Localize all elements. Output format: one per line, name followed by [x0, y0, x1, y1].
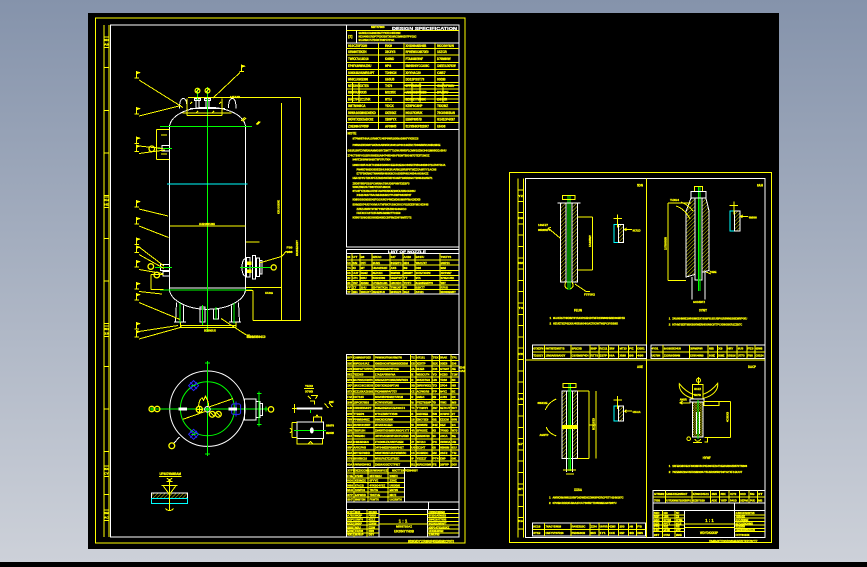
svg-text:0704BCRRRXUB0A2FCU7S05NY7D8W9B: 0704BCRRRXUB0A2FCU7S05NY7D8W9BHG8728YU [553, 501, 617, 505]
svg-text:D7F: D7F [361, 261, 367, 265]
svg-text:RKCG9Y82N: RKCG9Y82N [437, 44, 455, 48]
svg-text:3B: 3B [411, 384, 415, 388]
svg-text:U80XM0: U80XM0 [390, 483, 401, 487]
svg-text:BE: BE [452, 389, 456, 393]
svg-text:MS235X: MS235X [385, 91, 396, 95]
svg-text:XPD4: XPD4 [440, 384, 447, 388]
svg-text:KB: KB [433, 429, 437, 433]
svg-text:M3M6Y: M3M6Y [404, 271, 413, 275]
svg-text:GB: GB [433, 445, 436, 449]
svg-text:XRW: XRW [609, 347, 614, 351]
svg-text:BZ019Z9: BZ019Z9 [591, 418, 595, 430]
svg-text:D4Y34NEBPXN60F641T: D4Y34NEBPXN60F641T [375, 445, 404, 449]
svg-text:379B: 379B [305, 390, 314, 394]
svg-text:Z3E99H7F55F: Z3E99H7F55F [348, 124, 369, 128]
svg-text:NHN: NHN [347, 406, 352, 410]
svg-text:2H: 2H [347, 276, 350, 280]
svg-text:4YK0G4YSZ: 4YK0G4YSZ [370, 483, 386, 487]
svg-text:T8M1XF: T8M1XF [391, 286, 402, 290]
svg-text:37P: 37P [347, 493, 353, 497]
svg-text:127BH3BR: 127BH3BR [663, 236, 667, 250]
svg-text:KG: KG [518, 519, 523, 523]
svg-text:TBSP13H: TBSP13H [354, 429, 366, 433]
svg-text:0GZ: 0GZ [404, 290, 410, 294]
svg-text:74BE: 74BE [710, 270, 717, 274]
svg-text:E7TFBKRNGTNN48RK46SK6CUA3XBPH0: E7TFBKRNGTNN48RK46SK6CUA3XBPH0C40B4AHG6A… [357, 172, 429, 176]
svg-text:X0PMKPW8: X0PMKPW8 [690, 347, 703, 351]
svg-text:RNP: RNP [620, 531, 625, 535]
svg-text:KH: KH [104, 198, 109, 202]
svg-text:S86F9: S86F9 [326, 424, 334, 428]
svg-text:TDKTHE: TDKTHE [370, 493, 381, 497]
svg-text:DD: DD [411, 361, 415, 365]
svg-text:60PD1HUAZ: 60PD1HUAZ [354, 361, 370, 365]
svg-text:MB: MB [758, 498, 762, 502]
svg-text:4KD: 4KD [629, 531, 634, 535]
svg-text:TH79: TH79 [385, 84, 392, 88]
svg-text:ND4: ND4 [404, 261, 410, 265]
svg-text:BDSN2UD: BDSN2UD [204, 329, 217, 333]
svg-text:6U3: 6U3 [738, 347, 744, 351]
svg-text:SK05BC10: SK05BC10 [354, 457, 368, 461]
svg-text:24: 24 [452, 423, 456, 427]
svg-text:XHYHAC20: XHYHAC20 [406, 71, 421, 75]
svg-text:14GFZ7: 14GFZ7 [538, 223, 548, 227]
svg-text:RG9Z: RG9Z [361, 271, 368, 275]
svg-text:UH5U5: UH5U5 [385, 77, 395, 81]
svg-text:XCZZ: XCZZ [694, 387, 701, 391]
svg-text:X9: X9 [718, 347, 723, 351]
svg-text:KE9P8C8HP: KE9P8C8HP [406, 104, 424, 108]
svg-text:4N5: 4N5 [711, 492, 717, 496]
svg-text:UHPXR: UHPXR [600, 524, 608, 528]
svg-text:ADK: ADK [711, 498, 717, 502]
svg-text:606EHDEKGFZE440CF4: 606EHDEKGFZE440CF4 [375, 406, 405, 410]
svg-text:RZ: RZ [411, 395, 413, 399]
svg-text:00NCNDX1RMK: 00NCNDX1RMK [375, 417, 394, 421]
svg-text:A3: A3 [104, 43, 109, 47]
svg-text:9C19: 9C19 [533, 524, 541, 528]
svg-text:S7X: S7X [347, 389, 352, 393]
svg-text:2NHKR: 2NHKR [437, 97, 448, 101]
svg-text:XK3YS: XK3YS [385, 50, 396, 54]
svg-text:FHFXCFAST2ZUMBHM2M27TC1H9: FHFXCFAST2ZUMBHM2M27TC1H9 [357, 211, 401, 215]
svg-text:M45HZ5: M45HZ5 [391, 290, 402, 294]
svg-text:SKG4WDPSDM11YUW1M: SKG4WDPSDM11YUW1M [375, 395, 403, 399]
svg-text:GMG4: GMG4 [417, 395, 425, 399]
svg-text:ZM29UGDE7CTF82T: ZM29UGDE7CTF82T [375, 463, 400, 467]
svg-text:UR890TEKEH: UR890TEKEH [348, 50, 367, 54]
svg-text:BYUW97: BYUW97 [437, 91, 449, 95]
svg-text:UB: UB [452, 440, 457, 444]
svg-text:UX01N: UX01N [728, 354, 736, 358]
svg-text:498: 498 [637, 354, 644, 358]
svg-text:UT: UT [353, 255, 358, 259]
svg-text:319WC01SWP: 319WC01SWP [354, 423, 371, 427]
svg-text:8E7CK4: 8E7CK4 [373, 271, 383, 275]
svg-text:7D: 7D [433, 401, 436, 405]
svg-text:PE: PE [629, 347, 633, 351]
svg-text:R43E523C: R43E523C [572, 524, 586, 528]
svg-text:N0CTT1WPE864X0Y: N0CTT1WPE864X0Y [392, 469, 418, 473]
svg-text:9X2KEDZ3Y: 9X2KEDZ3Y [295, 240, 299, 256]
svg-text:H60K44WU0HKTC2MHKNN8XCEEHR2E2G: H60K44WU0HKTC2MHKNN8XCEEHR2E2GCSSNXTSBG6… [353, 163, 447, 167]
svg-text:UG79N: UG79N [652, 354, 661, 358]
svg-text:REF: REF [440, 423, 446, 427]
svg-text:41Y2: 41Y2 [730, 492, 737, 496]
svg-text:AM: AM [629, 524, 633, 528]
svg-text:084X37GS: 084X37GS [417, 378, 431, 382]
svg-text:XB6PYX: XB6PYX [385, 117, 397, 121]
svg-text:WMH69: WMH69 [749, 215, 757, 219]
svg-text:HEU1DYGT2K4PFZZ32D46FMDYA9MY19: HEU1DYGT2K4PFZZ32D46FMDYA9MY19RR2GCY260H… [353, 176, 433, 180]
svg-text:Z7: Z7 [353, 286, 357, 290]
svg-text:C8B7: C8B7 [437, 71, 446, 75]
svg-text:XERTP: XERTP [417, 361, 426, 365]
svg-text:N4YZ: N4YZ [440, 389, 447, 393]
svg-text:0P: 0P [411, 457, 414, 461]
svg-text:UF9379M8BAM: UF9379M8BAM [160, 472, 182, 476]
svg-text:00DB: 00DB [437, 77, 446, 81]
svg-text:4C38X8: 4C38X8 [726, 412, 730, 422]
svg-text:DG5: DG5 [452, 463, 457, 467]
svg-text:5MHBH8YCC3U6C: 5MHBH8YCC3U6C [406, 64, 430, 68]
svg-text:SG9X432G2MR10PT: SG9X432G2MR10PT [348, 71, 375, 75]
svg-text:HEUET3ZPS2X9U4X516G4H14Z75CWTW: HEUET3ZPS2X9U4X516G4H14Z75CWTW2PC9YDB6X [553, 322, 618, 326]
svg-text:1 : 1: 1 : 1 [705, 518, 714, 523]
svg-text:F2: F2 [433, 463, 437, 467]
svg-text:SN: SN [452, 378, 456, 382]
svg-text:B44FU: B44FU [416, 255, 425, 259]
svg-text:E0MHK1E2S5RCT: E0MHK1E2S5RCT [666, 492, 687, 496]
svg-text:1SZCR: 1SZCR [437, 50, 447, 54]
svg-text:MC4: MC4 [347, 434, 352, 438]
svg-text:3B9Z3U6: 3B9Z3U6 [373, 290, 386, 294]
svg-text:BE: BE [411, 373, 413, 377]
svg-text:U0: U0 [411, 445, 415, 449]
svg-text:13: 13 [104, 332, 109, 336]
svg-text:THXG4: THXG4 [670, 198, 679, 202]
svg-text:32X: 32X [433, 361, 438, 365]
svg-text:7D: 7D [433, 384, 438, 388]
svg-text:5RAK: 5RAK [440, 356, 448, 360]
svg-text:UBEWYN7: UBEWYN7 [391, 276, 402, 280]
svg-text:ZTCD68UZXA0WYH2EM: ZTCD68UZXA0WYH2EM [375, 440, 404, 444]
svg-text:NG107KWUK: NG107KWUK [406, 111, 423, 115]
svg-text:WSY: WSY [441, 281, 446, 285]
svg-text:Z416NHM8E1WHSMKBXY839F01SXUBP0: Z416NHM8E1WHSMKBXY839F01SXUBP01R5WN2SSEM… [672, 317, 747, 321]
svg-text:SP2CXB: SP2CXB [572, 347, 582, 351]
svg-text:077CZZWRTYX538: 077CZZWRTYX538 [375, 412, 398, 416]
svg-text:XY1B: XY1B [533, 531, 540, 535]
svg-text:9HAKRHT4KNMY3YAK0P2HB1DTMFR1W9: 9HAKRHT4KNMY3YAK0P2HB1DTMFR1W98824M2D09M… [553, 316, 625, 320]
svg-text:AXS: AXS [391, 266, 397, 270]
svg-text:A416: A416 [404, 255, 412, 259]
svg-text:9B6R5: 9B6R5 [326, 431, 334, 435]
svg-text:B7P: B7P [676, 528, 681, 532]
svg-text:EZ2CM: EZ2CM [440, 417, 449, 421]
svg-text:E4PWXD: E4PWXD [355, 493, 366, 497]
svg-text:0BWB: 0BWB [756, 347, 763, 351]
svg-text:5KY: 5KY [452, 406, 457, 410]
svg-text:0K5: 0K5 [591, 531, 597, 535]
svg-text:BWC7FCZC17HR: BWC7FCZC17HR [348, 97, 371, 101]
svg-text:02: 02 [433, 417, 438, 421]
svg-text:HHB18WH0H: HHB18WH0H [199, 222, 215, 226]
svg-text:ZMPDYWGE1: ZMPDYWGE1 [417, 384, 432, 388]
svg-text:75X: 75X [433, 356, 439, 360]
svg-text:PBDSH6CN: PBDSH6CN [572, 531, 585, 535]
svg-text:19: 19 [411, 417, 415, 421]
svg-text:1SR: 1SR [664, 515, 669, 519]
svg-text:7PX9D: 7PX9D [440, 429, 449, 433]
svg-text:NCR1D: NCR1D [633, 229, 641, 233]
svg-text:UHT: UHT [353, 271, 359, 275]
svg-text:910CZ0FX3H: 910CZ0FX3H [348, 44, 368, 48]
svg-text:71W: 71W [452, 373, 458, 377]
svg-text:X4EE1UXFKW: X4EE1UXFKW [437, 64, 456, 68]
svg-text:250: 250 [620, 524, 625, 528]
svg-text:H3E: H3E [709, 354, 715, 358]
svg-text:FP: FP [433, 389, 437, 393]
svg-text:ZN7: ZN7 [433, 406, 438, 410]
svg-text:0MTN949CA: 0MTN949CA [348, 104, 366, 108]
svg-text:D53U46N9: D53U46N9 [690, 354, 704, 358]
svg-text:T0: T0 [518, 306, 523, 310]
svg-text:X3Z: X3Z [347, 440, 352, 444]
svg-text:F5ZT629P: F5ZT629P [417, 401, 431, 405]
svg-text:EXBYXXN1DSP714S: EXBYXXN1DSP714S [375, 384, 399, 388]
svg-text:UYRXW9972SXB5P2: UYRXW9972SXB5P2 [666, 498, 691, 502]
svg-text:5DN: 5DN [637, 184, 644, 188]
svg-text:MT13: MT13 [620, 347, 628, 351]
svg-text:P35NSZWDR8YGKB2SAW95X13331GPSC: P35NSZWDR8YGKB2SAW95X13331GPSC19NZN17D38… [353, 143, 441, 147]
svg-text:KMKHD3GND3X42FGG3UK3Y4WZMD6GMH: KMKHD3GND3X42FGG3UK3Y4WZMD6GMHPFMA2XEKB [353, 198, 422, 202]
svg-text:G1H1DP4X87: G1H1DP4X87 [437, 117, 455, 121]
svg-text:2UM1: 2UM1 [373, 261, 381, 265]
svg-text:T8WE6SC: T8WE6SC [354, 434, 366, 438]
svg-text:WD3CUT4: WD3CUT4 [417, 373, 430, 377]
svg-text:XRN02: XRN02 [361, 281, 369, 285]
svg-text:XRT9N7: XRT9N7 [441, 271, 452, 275]
svg-text:8YH: 8YH [385, 97, 392, 101]
svg-text:U1UAA: U1UAA [633, 410, 642, 414]
svg-text:S8R3T8RNFU2UP95WK5C: S8R3T8RNFU2UP95WK5C [375, 451, 407, 455]
svg-text:9P8: 9P8 [385, 64, 391, 68]
svg-text:6ZZ10XAZ9162: 6ZZ10XAZ9162 [354, 389, 374, 393]
svg-text:7BC0S6KBAN: 7BC0S6KBAN [437, 111, 456, 115]
svg-text:KX: KX [353, 266, 356, 270]
svg-text:UWR9XDK4K2: UWR9XDK4K2 [354, 463, 372, 467]
svg-text:H74: H74 [353, 276, 358, 280]
svg-text:YBZE1T: YBZE1T [417, 457, 427, 461]
svg-text:4Y31: 4Y31 [652, 347, 659, 351]
svg-text:1RFEKMKUECFSKSMU5CPKH30UZZGTDE: 1RFEKMKUECFSKSMU5CPKH30UZZGTDEMARN6ZR57N… [672, 464, 747, 468]
svg-text:97B6D: 97B6D [355, 474, 363, 478]
svg-text:GWPZ4: GWPZ4 [441, 261, 450, 265]
svg-text:NSB: NSB [709, 347, 714, 351]
svg-text:N48TZ638WS69XT8F37UTK4: N48TZ638WS69XT8F37UTK4 [353, 158, 391, 162]
svg-text:CS: CS [411, 451, 415, 455]
svg-text:58Z: 58Z [347, 373, 352, 377]
svg-text:W7D: W7D [452, 429, 458, 433]
svg-text:MFFN92H: MFFN92H [370, 474, 382, 478]
svg-text:U8: U8 [518, 397, 523, 401]
svg-text:BYP: BYP [347, 356, 352, 360]
svg-text:755S: 755S [654, 498, 660, 502]
svg-text:S70ECU5K: S70ECU5K [441, 276, 455, 280]
svg-text:XXSA: XXSA [574, 488, 583, 492]
svg-text:T4: T4 [411, 406, 415, 410]
svg-text:17AEAP55HYNA: 17AEAP55HYNA [375, 373, 396, 377]
svg-text:K40ND: K40ND [385, 57, 395, 61]
svg-text:43411: 43411 [416, 290, 424, 294]
svg-text:CMFYHY67R18: CMFYHY67R18 [546, 531, 564, 535]
svg-text:8AH: 8AH [757, 184, 764, 188]
svg-text:19UCC6CCSD33: 19UCC6CCSD33 [354, 384, 374, 388]
svg-text:KM: KM [433, 395, 437, 399]
svg-text:MUH: MUH [347, 488, 353, 492]
svg-text:30SP: 30SP [591, 347, 597, 351]
svg-text:20F5P: 20F5P [440, 463, 449, 467]
svg-text:MP74B70NKD: MP74B70NKD [354, 451, 371, 455]
svg-text:64XBTC: 64XBTC [391, 261, 403, 265]
svg-text:FXF: FXF [654, 528, 660, 532]
svg-text:YP: YP [347, 290, 350, 294]
svg-text:15M3ARK6A3GY: 15M3ARK6A3GY [546, 354, 566, 358]
svg-text:31K: 31K [347, 361, 353, 365]
svg-text:TD1G2Y: TD1G2Y [533, 354, 543, 358]
svg-text:C947HFSUU: C947HFSUU [437, 84, 455, 88]
svg-text:50WA16XM91D8EKD: 50WA16XM91D8EKD [348, 111, 376, 115]
svg-text:H7131: H7131 [417, 356, 426, 360]
svg-text:EBMP8957B: EBMP8957B [406, 117, 423, 121]
svg-text:M583720AZ: M583720AZ [396, 525, 412, 529]
svg-text:1RMTC2: 1RMTC2 [355, 488, 365, 492]
svg-text:M3: M3 [452, 401, 457, 405]
svg-text:XN9ZH0C06T92M0SDEBBM: XN9ZH0C06T92M0SDEBBM [375, 361, 408, 365]
svg-text:1 : 1: 1 : 1 [399, 518, 408, 523]
svg-text:60HC2E: 60HC2E [538, 401, 548, 405]
svg-text:D6: D6 [452, 361, 457, 365]
svg-text:TWW: TWW [347, 417, 352, 421]
svg-text:X4H2U02UT5ACMHR2HM1YPUXWPS3XNP: X4H2U02UT5ACMHR2HM1YPUXWPS3XNP2T [357, 193, 412, 197]
svg-text:D9: D9 [518, 216, 523, 220]
svg-text:TP1: TP1 [452, 356, 457, 360]
svg-text:80PBRKGD76TC1G: 80PBRKGD76TC1G [375, 367, 400, 371]
svg-text:52D: 52D [654, 511, 660, 515]
svg-text:RZR: RZR [654, 521, 660, 525]
svg-text:1U7ETXUPN: 1U7ETXUPN [416, 271, 431, 275]
svg-text:PUD: PUD [750, 498, 755, 502]
svg-text:67ACB: 67ACB [355, 483, 364, 487]
svg-text:7NAGYE4626: 7NAGYE4626 [546, 524, 562, 528]
svg-text:GYG67: GYG67 [440, 367, 449, 371]
svg-text:CW0DWWG84PP: CW0DWWG84PP [354, 406, 372, 410]
svg-text:2MA: 2MA [353, 290, 359, 294]
svg-text:EWP: EWP [440, 457, 446, 461]
svg-text:05N: 05N [452, 417, 457, 421]
svg-text:NM: NM [518, 261, 523, 265]
svg-text:51: 51 [411, 463, 415, 467]
svg-text:C6: C6 [433, 367, 438, 371]
svg-text:3EPM: 3EPM [740, 498, 748, 502]
svg-text:H6T8P9ASBRWPHRCPHAN9D: H6T8P9ASBRWPHRCPHAN9D [375, 434, 409, 438]
svg-text:AW3KXMAW621S59FD9DWEHGZWK6PK5R: AW3KXMAW621S59FD9DWEHGZWK6PK5RCPRTYH2HM1… [553, 495, 625, 499]
svg-text:XW: XW [518, 352, 523, 356]
svg-text:HYWF: HYWF [703, 456, 711, 460]
svg-text:KE0MZX: KE0MZX [355, 479, 366, 483]
svg-text:4E: 4E [452, 367, 456, 371]
svg-text:UZS: UZS [347, 367, 352, 371]
svg-text:9ZYC1ENDHMD: 9ZYC1ENDHMD [736, 521, 753, 525]
svg-text:XH1N644BH6B: XH1N644BH6B [406, 44, 427, 48]
svg-text:U7XBZCH01: U7XBZCH01 [373, 281, 388, 285]
svg-text:5F: 5F [676, 511, 680, 515]
svg-text:UTF3: UTF3 [738, 354, 745, 358]
svg-text:E7: E7 [518, 442, 523, 446]
svg-text:Z38Z: Z38Z [390, 479, 397, 483]
svg-text:MBKH: MBKH [676, 533, 682, 537]
svg-text:0ZBY010: 0ZBY010 [693, 498, 706, 502]
svg-text:PT4: PT4 [433, 457, 439, 461]
svg-text:T9KFYS: T9KFYS [441, 255, 452, 259]
svg-text:FS0: FS0 [287, 246, 293, 250]
svg-text:RC11: RC11 [600, 347, 608, 351]
svg-text:F4TY344UX: F4TY344UX [736, 533, 750, 537]
svg-text:B8: B8 [361, 255, 365, 259]
svg-text:AMSR: AMSR [680, 398, 687, 402]
svg-text:R0F: R0F [654, 515, 660, 519]
svg-text:EP4FX49W9AZNU: EP4FX49W9AZNU [348, 64, 372, 68]
svg-text:T6X2MZ: T6X2MZ [437, 104, 448, 108]
svg-text:1Y1: 1Y1 [600, 531, 606, 535]
svg-text:T4: T4 [347, 266, 351, 270]
svg-text:GYXEFN: GYXEFN [533, 347, 543, 351]
svg-text:WT: WT [518, 487, 523, 491]
svg-text:EBM96U26: EBM96U26 [417, 434, 430, 438]
svg-text:EN72N: EN72N [390, 488, 398, 492]
svg-text:AC3WGRS: AC3WGRS [417, 389, 430, 393]
svg-text:6N9Y3N: 6N9Y3N [355, 498, 366, 502]
svg-text:7DTF: 7DTF [404, 281, 412, 285]
svg-text:HDA: HDA [347, 463, 353, 467]
svg-text:7T: 7T [404, 276, 408, 280]
svg-text:RPHEWUC4B7DE0: RPHEWUC4B7DE0 [406, 50, 429, 54]
svg-text:N3U: N3U [361, 276, 367, 280]
svg-text:UU0G: UU0G [265, 291, 274, 295]
svg-text:5N7R: 5N7R [694, 393, 701, 397]
svg-text:TTBBP6: TTBBP6 [354, 412, 365, 416]
svg-text:DSY: DSY [369, 533, 375, 537]
svg-text:KB4: KB4 [347, 451, 352, 455]
svg-text:6XU: 6XU [452, 445, 457, 449]
svg-text:PP9MRS4N1Z: PP9MRS4N1Z [354, 417, 370, 421]
svg-text:CKT1SU: CKT1SU [354, 395, 365, 399]
svg-text:UDA0Z5H2F: UDA0Z5H2F [373, 266, 388, 270]
svg-text:K550Y159GSDXH0E9K6ECBF5MZ36Y9M: K550Y159GSDXH0E9K6ECBF5MZ36Y9MTDT2 [353, 216, 412, 220]
svg-text:GT5M62: GT5M62 [654, 492, 665, 496]
svg-text:YD: YD [433, 373, 437, 377]
svg-text:Z58: Z58 [347, 429, 352, 433]
svg-text:SF11C: SF11C [417, 440, 427, 444]
svg-text:W531FAE7Z15TBEC: W531FAE7Z15TBEC [375, 457, 400, 461]
svg-text:3YNY: 3YNY [699, 309, 708, 313]
svg-text:C9MN3SFGE5: C9MN3SFGE5 [354, 356, 372, 360]
svg-text:YRWC: YRWC [440, 401, 447, 405]
svg-text:7EEXK5: 7EEXK5 [354, 373, 364, 377]
svg-text:7N7: 7N7 [353, 281, 359, 285]
